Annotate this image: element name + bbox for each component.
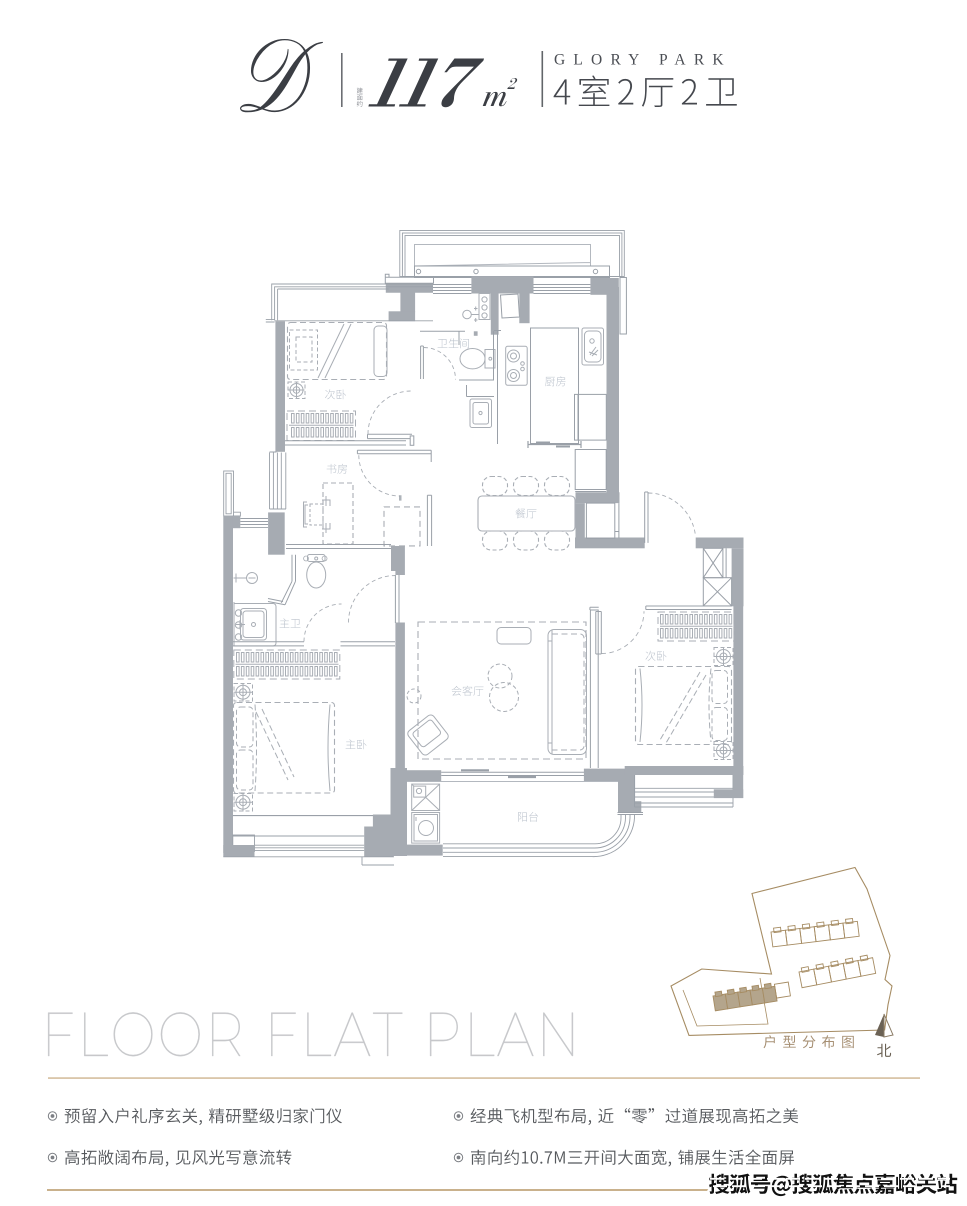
svg-text:GLORY PARK: GLORY PARK [554,52,732,69]
